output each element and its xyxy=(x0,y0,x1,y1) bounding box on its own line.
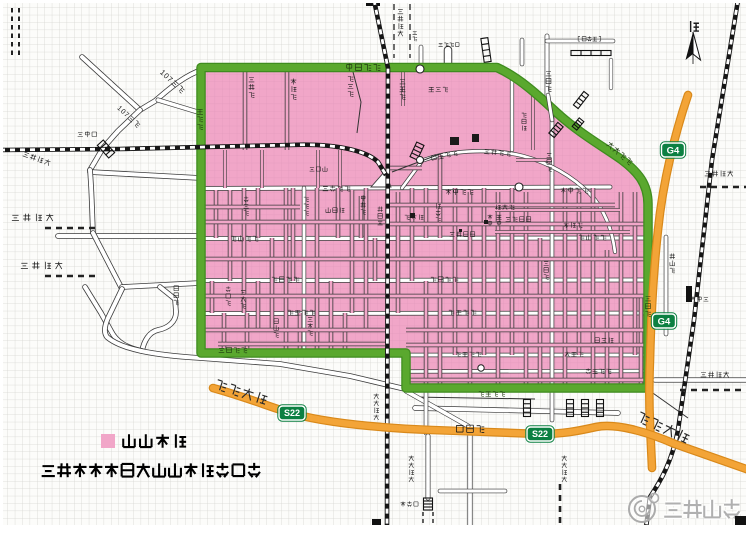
svg-text:S22: S22 xyxy=(284,408,300,418)
svg-text:G4: G4 xyxy=(658,316,671,327)
svg-text:G4: G4 xyxy=(667,145,680,156)
svg-text:S22: S22 xyxy=(532,429,548,439)
